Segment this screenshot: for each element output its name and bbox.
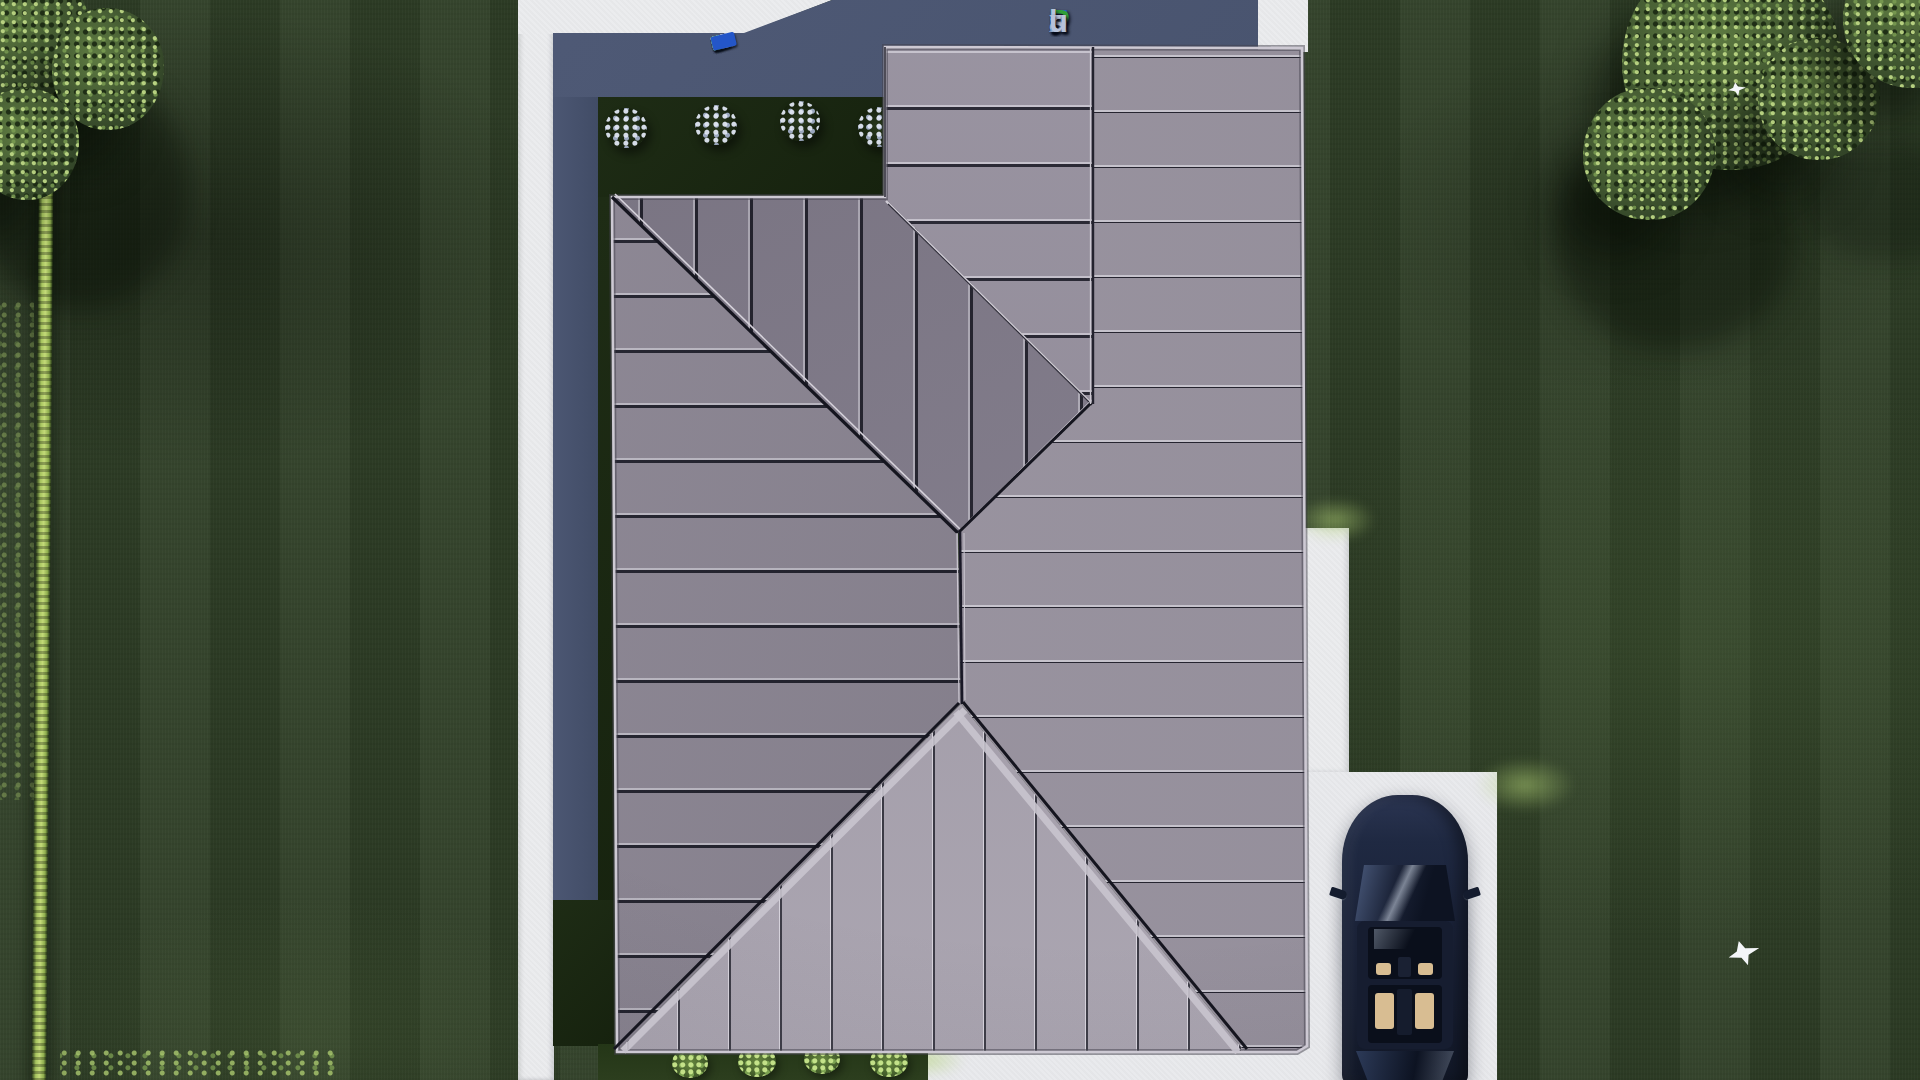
flower-bush [605, 108, 647, 148]
car-seat [1415, 993, 1434, 1029]
grass-tufts [0, 300, 34, 800]
path-sliver-top-right [1256, 0, 1308, 52]
car-seat [1375, 993, 1394, 1029]
terrace-strip [553, 97, 598, 902]
car-windshield [1355, 865, 1455, 921]
walkway-right [1302, 528, 1349, 774]
flower-bush [695, 105, 737, 145]
car-console [1397, 989, 1412, 1035]
car-seat [1418, 963, 1433, 975]
flower-bush [780, 101, 820, 141]
grass-tufts [60, 1048, 340, 1076]
car-rear-window [1356, 1051, 1454, 1080]
car-sunroof-rear [1368, 985, 1442, 1043]
car [1342, 795, 1468, 1080]
car-sunroof-front [1368, 927, 1442, 979]
green-bush [672, 1048, 708, 1078]
garden-bed-top [598, 97, 887, 198]
walkway-left [518, 0, 554, 1080]
car-console [1398, 957, 1411, 977]
glass-reflection [1374, 929, 1434, 949]
car-roof-panel [1357, 921, 1453, 1049]
garden-patch-left [553, 900, 614, 1046]
grass-glow [1470, 755, 1580, 815]
tree-canopy [1583, 88, 1715, 220]
aerial-render: FixPlans.ru [0, 0, 1920, 1080]
car-seat [1376, 963, 1391, 975]
watermark-letter: u [1049, 4, 1069, 40]
